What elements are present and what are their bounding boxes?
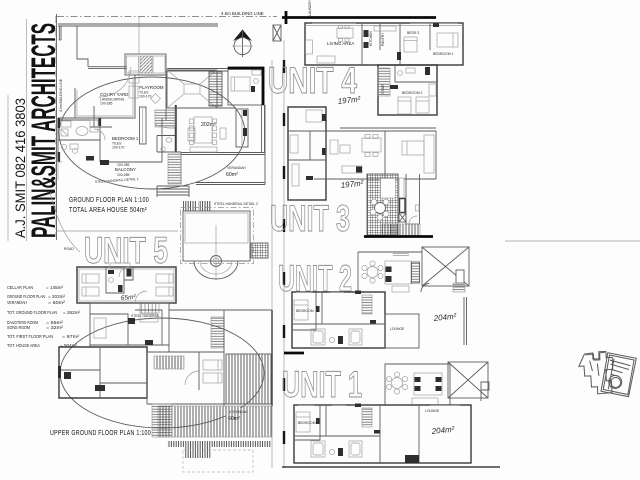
svg-text:= 97m²: = 97m² <box>62 334 80 339</box>
svg-text:4.5m BUILDING LINE: 4.5m BUILDING LINE <box>221 11 264 16</box>
svg-text:TOT. FIRST FLOOR PLAN: TOT. FIRST FLOOR PLAN <box>7 334 53 339</box>
svg-text:LOUNGE: LOUNGE <box>425 409 440 413</box>
svg-text:60m²: 60m² <box>226 172 238 178</box>
svg-text:CELLAR PLAN: CELLAR PLAN <box>7 285 33 290</box>
svg-text:197m²: 197m² <box>340 179 364 190</box>
svg-text:= 202m²: = 202m² <box>48 294 66 299</box>
svg-text:= 32m²: = 32m² <box>46 325 64 330</box>
svg-text:4.5m BUILDING LINE: 4.5m BUILDING LINE <box>59 78 63 112</box>
svg-text:STEEL HANDRAIL DETAIL 1: STEEL HANDRAIL DETAIL 1 <box>95 177 139 184</box>
svg-text:TOT. GROUND FLOOR PLAN: TOT. GROUND FLOOR PLAN <box>7 310 57 315</box>
svg-text:BEDROOM 2: BEDROOM 2 <box>402 91 422 95</box>
svg-text:BEDROOM 1: BEDROOM 1 <box>433 52 453 56</box>
svg-text:STEEL HANDRAIL: STEEL HANDRAIL <box>131 314 160 318</box>
svg-text:UNIT 2: UNIT 2 <box>278 258 352 299</box>
svg-text:LAUNDRY: LAUNDRY <box>308 0 312 16</box>
svg-text:= 262m²: = 262m² <box>63 310 81 315</box>
svg-text:PANTRY: PANTRY <box>381 32 385 46</box>
svg-text:BEDROOM: BEDROOM <box>296 309 314 313</box>
svg-text:= 60m²: = 60m² <box>48 300 66 305</box>
svg-text:197m²: 197m² <box>337 95 361 106</box>
svg-text:202m²: 202m² <box>201 122 216 128</box>
svg-text:UNIT 1: UNIT 1 <box>282 364 362 405</box>
svg-text:UNIT 4: UNIT 4 <box>268 60 357 101</box>
svg-text:204m²: 204m² <box>432 312 457 323</box>
svg-text:BEDROOM 1: BEDROOM 1 <box>112 136 139 141</box>
svg-text:100-285: 100-285 <box>117 173 130 177</box>
svg-text:= 145m²: = 145m² <box>46 285 64 290</box>
svg-text:BEDROOM: BEDROOM <box>298 421 316 425</box>
svg-text:UNIT 5: UNIT 5 <box>84 230 168 271</box>
svg-text:UNIT 3: UNIT 3 <box>270 198 350 239</box>
svg-text:BEDR 3: BEDR 3 <box>407 31 419 35</box>
svg-text:LOUNGE: LOUNGE <box>390 327 405 331</box>
svg-text:STAIR: STAIR <box>381 84 385 94</box>
svg-text:COURT YARD: COURT YARD <box>100 92 128 97</box>
svg-text:GROUND FLOOR PLAN: GROUND FLOOR PLAN <box>7 294 45 299</box>
svg-text:PLAYROOM: PLAYROOM <box>139 85 164 90</box>
svg-text:204m²: 204m² <box>430 425 455 436</box>
svg-text:VERANDAH: VERANDAH <box>7 300 27 305</box>
svg-text:ROAD: ROAD <box>64 247 74 251</box>
svg-text:SONS ROOM: SONS ROOM <box>7 325 30 330</box>
svg-text:100-170: 100-170 <box>139 95 152 99</box>
svg-text:GROUND FLOOR PLAN 1:100: GROUND FLOOR PLAN 1:100 <box>69 195 149 204</box>
svg-text:TOT. HOUSE AREA: TOT. HOUSE AREA <box>7 343 40 348</box>
svg-text:65m²: 65m² <box>121 294 137 302</box>
svg-text:PALIN&SMIT ARCHITECTS: PALIN&SMIT ARCHITECTS <box>25 23 63 238</box>
svg-text:VERANDAH: VERANDAH <box>227 166 246 170</box>
svg-text:UPPER GROUND FLOOR PLAN 1:100: UPPER GROUND FLOOR PLAN 1:100 <box>50 428 151 437</box>
svg-text:100-170: 100-170 <box>112 146 125 150</box>
svg-text:100-285: 100-285 <box>100 102 113 106</box>
svg-text:TOTAL AREA HOUSE 504m²: TOTAL AREA HOUSE 504m² <box>69 205 147 214</box>
svg-text:A.J. SMIT 082 416 3803: A.J. SMIT 082 416 3803 <box>12 98 28 238</box>
svg-text:BALCONY: BALCONY <box>115 167 136 172</box>
svg-text:KITCHEN: KITCHEN <box>369 31 373 46</box>
svg-text:STEEL HANDRAIL DETAIL 2: STEEL HANDRAIL DETAIL 2 <box>214 202 258 206</box>
